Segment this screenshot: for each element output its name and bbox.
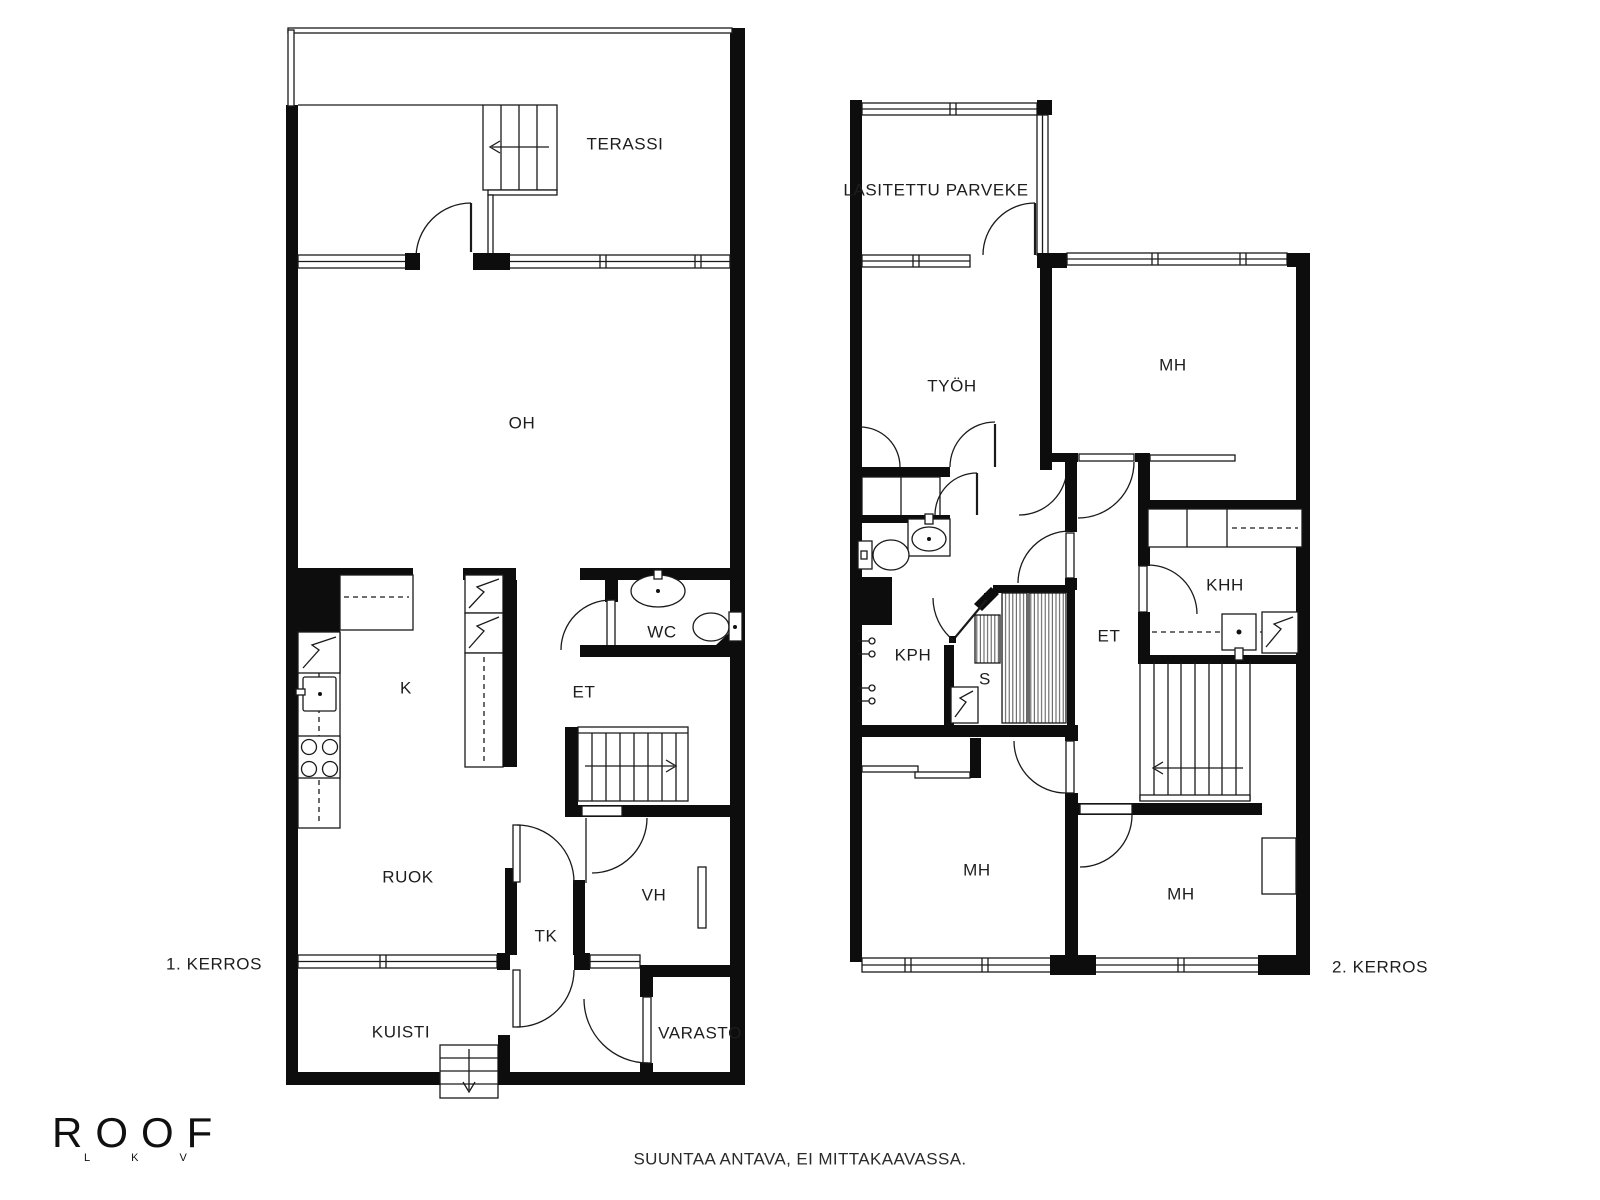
vh-room [578, 805, 745, 928]
kph-sink-icon [908, 514, 950, 556]
room-label-kuisti: KUISTI [372, 1023, 430, 1042]
floor2-caption: 2. KERROS [1332, 958, 1428, 977]
room-label-s: S [979, 670, 991, 689]
bed-icon [1262, 838, 1296, 894]
khh-appliance-icon [1262, 612, 1298, 653]
terrace-door [416, 203, 471, 258]
terrace-outline [288, 28, 732, 106]
room-label-mh-ylh: MH [1159, 356, 1187, 375]
floorplan-page: TERASSIOHKWCETRUOKTKVHKUISTIVARASTO 1. K… [0, 0, 1600, 1200]
tyoh-mh-divider-wall [1040, 255, 1052, 470]
main-staircase-icon [565, 727, 688, 817]
disclaimer-text: SUUNTAA ANTAVA, EI MITTAKAAVASSA. [633, 1150, 966, 1169]
room-label-et: ET [573, 683, 596, 702]
floor2-plan: LASITETTU PARVEKETYÖHMHKPHSETKHHMHMH 2. … [843, 100, 1428, 977]
room-label-kph: KPH [895, 646, 932, 665]
sauna-stove-icon [951, 687, 978, 723]
room-label-terassi: TERASSI [587, 135, 664, 154]
balcony-door [983, 203, 1035, 255]
room-label-wc: WC [647, 623, 677, 642]
tyoh-doors [852, 422, 995, 477]
kitchen-fixtures [296, 575, 517, 828]
fridge-icon [298, 632, 340, 673]
room-label-tk: TK [535, 927, 558, 946]
toilet-icon [693, 612, 742, 641]
terrace-stairs-icon [483, 105, 557, 258]
mh-sliding-closet [862, 738, 981, 778]
tall-cabinet-fridge-unit [465, 575, 503, 767]
entry-door [513, 970, 574, 1027]
floor1-bottom-window-band [298, 953, 640, 1027]
room-label-ruok: RUOK [382, 868, 434, 887]
floor2-bottom-window-band [862, 955, 1310, 975]
room-label-mh-vasen: MH [963, 861, 991, 880]
room-label-vh: VH [642, 886, 667, 905]
room-label-oh: OH [509, 414, 536, 433]
kuisti-steps-icon [440, 1035, 510, 1098]
floor1-plan: TERASSIOHKWCETRUOKTKVHKUISTIVARASTO 1. K… [166, 28, 745, 1098]
stove-icon [298, 736, 340, 778]
wc-room [561, 568, 745, 657]
room-label-varasto: VARASTO [658, 1024, 742, 1043]
logo-subtitle: LKV [84, 1152, 228, 1164]
room-label-tyoh: TYÖH [927, 377, 977, 396]
khh-sink-icon [1222, 614, 1256, 660]
et-kph-door [1018, 462, 1077, 590]
khh-room [1138, 462, 1310, 664]
sauna-benches [975, 593, 1066, 723]
logo-title: ROOF [52, 1109, 225, 1156]
roof-lkv-logo: ROOF LKV [52, 1109, 228, 1164]
floor2-lower-walls [862, 725, 1296, 958]
floor2-staircase-icon [1140, 662, 1250, 801]
room-label-parveke: LASITETTU PARVEKE [843, 181, 1028, 200]
floor1-caption: 1. KERROS [166, 955, 262, 974]
floor2-top-window-band [1067, 253, 1310, 267]
floorplan-canvas: TERASSIOHKWCETRUOKTKVHKUISTIVARASTO 1. K… [0, 0, 1600, 1200]
kph-toilet-icon [858, 540, 909, 570]
room-label-khh: KHH [1206, 576, 1244, 595]
room-label-mh-oikea: MH [1167, 885, 1195, 904]
room-label-k: K [400, 679, 412, 698]
room-label-et2: ET [1098, 627, 1121, 646]
floor1-top-window-band [298, 252, 730, 271]
